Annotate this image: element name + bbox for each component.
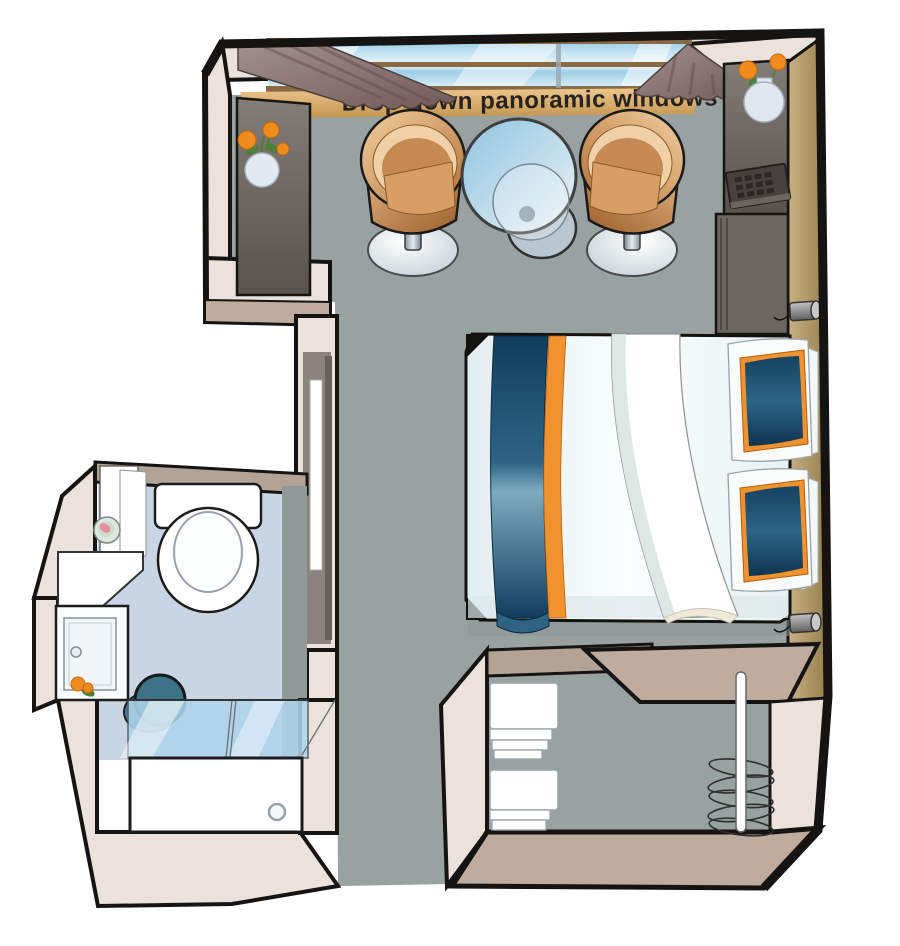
outer-outline-left xyxy=(205,72,206,300)
armchair xyxy=(361,110,465,276)
table-inner-ring xyxy=(493,164,569,240)
bed-runner xyxy=(491,336,549,618)
toilet xyxy=(155,484,261,612)
table-center-detail xyxy=(519,206,535,222)
shower-drain xyxy=(269,804,285,820)
pillow-top xyxy=(728,339,812,462)
floor-plan-canvas: Drop-down panoramic windows xyxy=(0,0,900,946)
clothes-rail xyxy=(736,672,746,832)
full-length-mirror xyxy=(310,380,322,570)
pillow-bottom xyxy=(728,469,812,592)
armchair-right xyxy=(580,110,684,276)
bathroom-door-panels xyxy=(100,466,146,558)
double-bed xyxy=(466,334,818,636)
cabin-floor-plan: Drop-down panoramic windows xyxy=(0,0,900,946)
soap-dish xyxy=(94,517,120,543)
toilet-seat xyxy=(174,512,242,592)
cabinet-knob xyxy=(71,647,81,657)
shower-tray xyxy=(130,758,302,832)
window-divider xyxy=(556,44,561,88)
mirror-dark-edge xyxy=(325,356,332,640)
left-console xyxy=(237,98,310,295)
right-console xyxy=(716,54,790,334)
bathroom-left-wall-mid xyxy=(34,598,58,710)
bottom-wall-band xyxy=(452,828,820,888)
shower-glass-screen xyxy=(120,700,335,758)
